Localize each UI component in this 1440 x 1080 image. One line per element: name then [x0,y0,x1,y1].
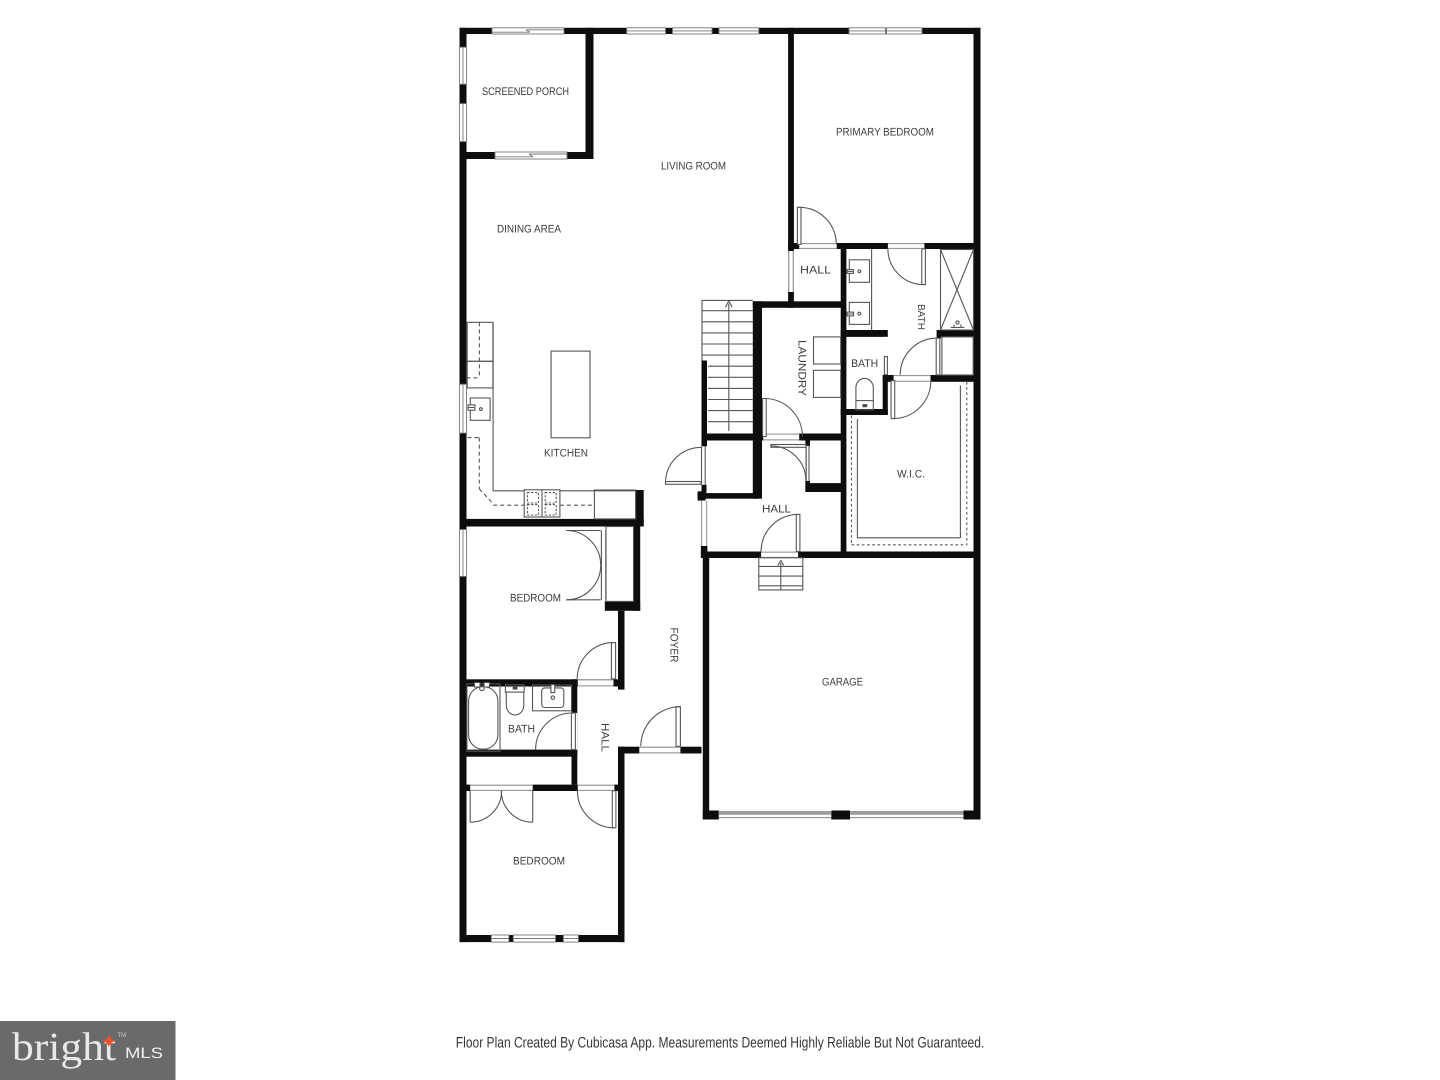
svg-text:GARAGE: GARAGE [822,676,863,688]
svg-text:MLS: MLS [125,1045,163,1062]
svg-text:bright: bright [12,1024,116,1069]
svg-text:LIVING ROOM: LIVING ROOM [661,160,726,172]
svg-text:Floor Plan Created By Cubicasa: Floor Plan Created By Cubicasa App. Meas… [456,1035,985,1052]
svg-text:HALL: HALL [800,264,831,276]
svg-text:DINING AREA: DINING AREA [497,223,562,235]
svg-text:BATH: BATH [851,358,878,370]
svg-text:HALL: HALL [599,723,611,752]
svg-text:TM: TM [118,1033,127,1039]
svg-text:BEDROOM: BEDROOM [510,592,561,604]
svg-text:KITCHEN: KITCHEN [544,447,588,459]
svg-text:W.I.C.: W.I.C. [897,468,925,480]
svg-text:BEDROOM: BEDROOM [513,855,565,867]
svg-text:FOYER: FOYER [668,628,680,663]
svg-text:LAUNDRY: LAUNDRY [796,340,808,397]
svg-text:SCREENED PORCH: SCREENED PORCH [482,86,569,98]
svg-text:PRIMARY BEDROOM: PRIMARY BEDROOM [836,126,934,138]
svg-text:BATH: BATH [508,723,535,735]
svg-text:BATH: BATH [915,304,926,330]
svg-text:HALL: HALL [762,503,791,515]
